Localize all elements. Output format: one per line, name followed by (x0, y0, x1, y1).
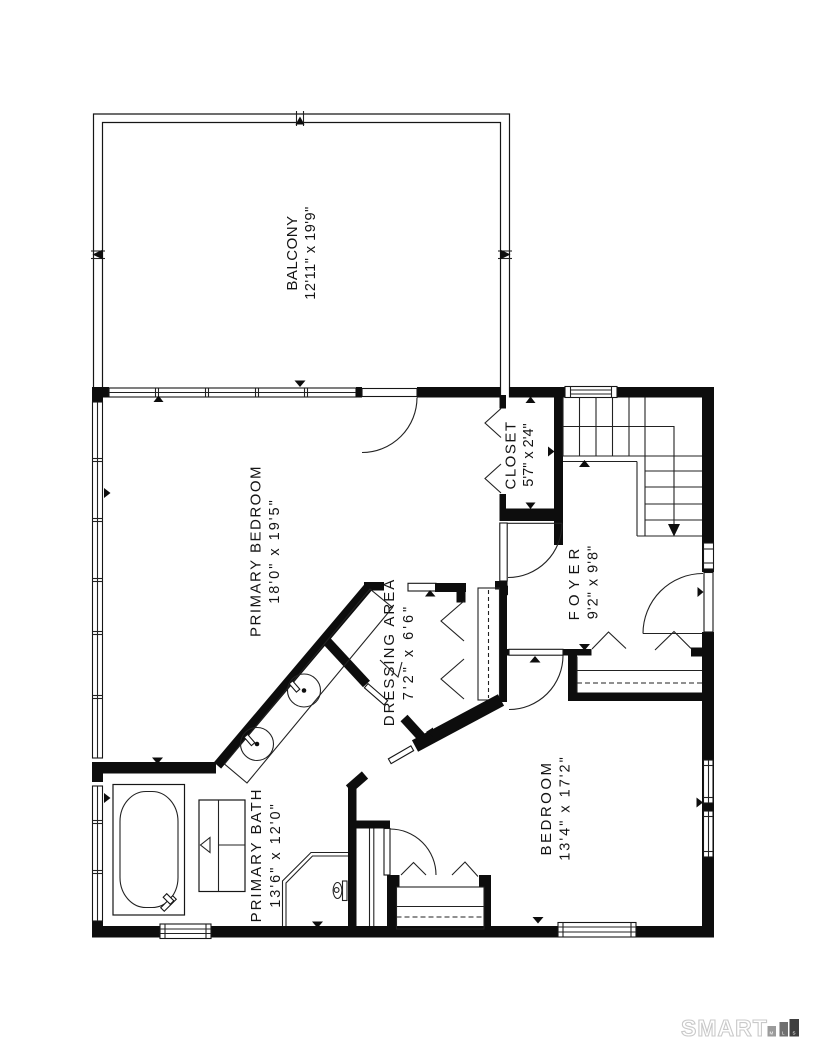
svg-text:7'2" x 6'6": 7'2" x 6'6" (401, 604, 417, 700)
svg-text:M: M (770, 1031, 774, 1036)
svg-text:12'11" x 19'9": 12'11" x 19'9" (303, 206, 319, 300)
svg-text:SMART: SMART (681, 1015, 768, 1041)
svg-text:CLOSET: CLOSET (503, 420, 520, 489)
svg-text:13'4" x 17'2": 13'4" x 17'2" (558, 755, 574, 861)
svg-text:PRIMARY BATH: PRIMARY BATH (248, 788, 265, 923)
svg-text:PRIMARY BEDROOM: PRIMARY BEDROOM (248, 465, 265, 637)
svg-text:BEDROOM: BEDROOM (538, 760, 555, 855)
svg-text:FOYER: FOYER (566, 544, 583, 621)
svg-text:13'6" x 12'0": 13'6" x 12'0" (268, 802, 284, 908)
svg-text:S: S (793, 1031, 796, 1036)
svg-text:BALCONY: BALCONY (284, 215, 301, 290)
svg-text:9'2" x 9'8": 9'2" x 9'8" (586, 545, 602, 619)
svg-text:18'0" x 19'5": 18'0" x 19'5" (267, 498, 283, 604)
svg-text:5'7" x 2'4": 5'7" x 2'4" (521, 423, 537, 486)
